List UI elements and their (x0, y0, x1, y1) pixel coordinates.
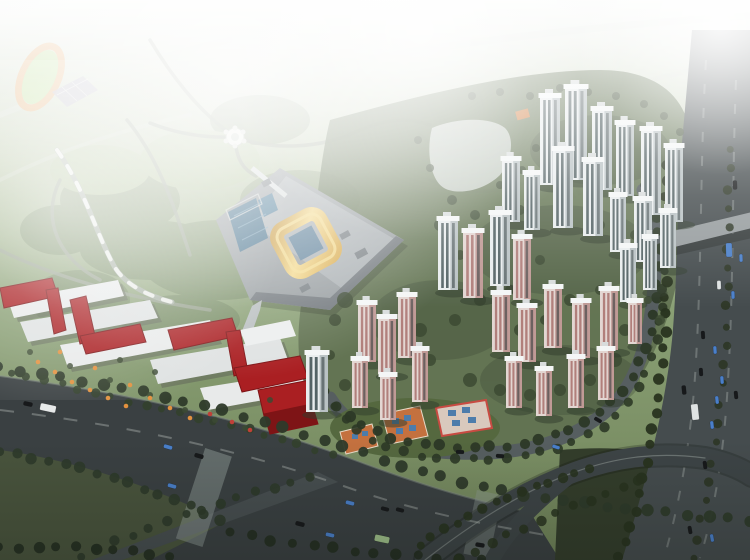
scene-canvas (0, 0, 750, 560)
haze-topright (540, 0, 750, 200)
haze-left (0, 60, 300, 400)
aerial-masterplan-render (0, 0, 750, 560)
bottom-vignette (0, 440, 750, 560)
